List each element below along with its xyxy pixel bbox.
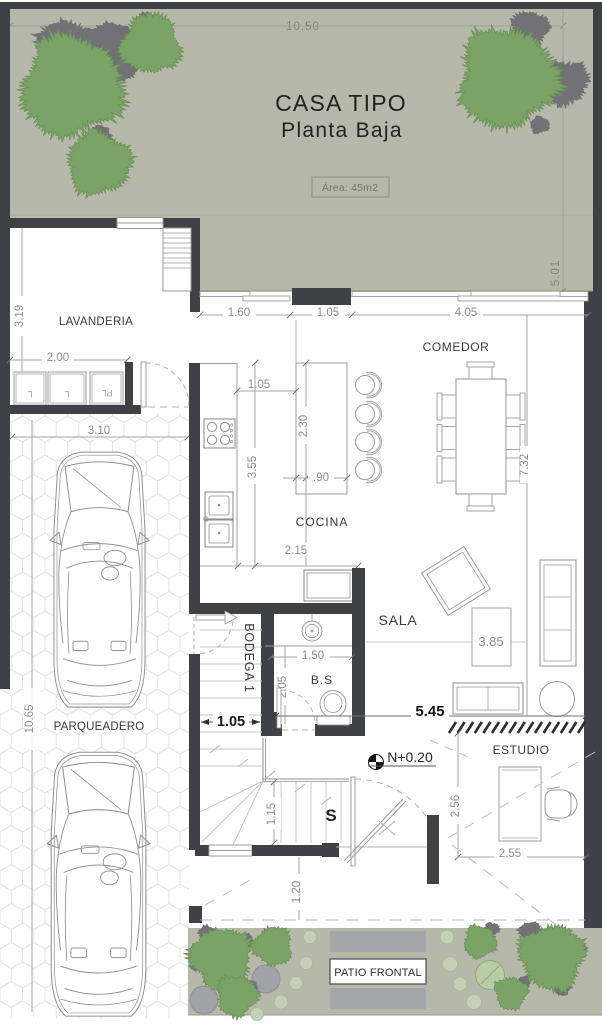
svg-text:10.65: 10.65 (24, 705, 36, 734)
svg-text:5.45: 5.45 (415, 703, 444, 720)
svg-text:2.30: 2.30 (298, 415, 310, 437)
svg-text:COCINA: COCINA (296, 515, 349, 529)
svg-text:4.05: 4.05 (455, 307, 477, 319)
svg-text:1.05: 1.05 (317, 307, 339, 319)
svg-text:COMEDOR: COMEDOR (423, 340, 490, 354)
svg-text:2.55: 2.55 (499, 848, 521, 860)
svg-text:3.55: 3.55 (247, 456, 259, 478)
svg-text:3.10: 3.10 (88, 425, 110, 437)
svg-text:3.19: 3.19 (14, 305, 26, 327)
svg-text:7.32: 7.32 (519, 454, 531, 476)
svg-text:S: S (325, 806, 336, 825)
svg-text:1.05: 1.05 (248, 379, 270, 391)
svg-text:5.01: 5.01 (550, 260, 562, 286)
svg-text:1.05: 1.05 (217, 714, 245, 730)
svg-text:2.00: 2.00 (47, 352, 69, 364)
svg-text:1.60: 1.60 (228, 307, 250, 319)
svg-text:BODEGA 1: BODEGA 1 (242, 623, 256, 693)
svg-text:1.20: 1.20 (291, 881, 303, 903)
svg-text:SALA: SALA (379, 612, 418, 628)
svg-text:PARQUEADERO: PARQUEADERO (54, 721, 145, 733)
svg-text:LAVANDERIA: LAVANDERIA (59, 316, 133, 328)
svg-text:10.50: 10.50 (286, 21, 320, 33)
svg-text:2.15: 2.15 (285, 545, 307, 557)
svg-text:PL: PL (101, 388, 112, 398)
svg-text:ESTUDIO: ESTUDIO (493, 743, 550, 757)
svg-text:3.85: 3.85 (478, 634, 503, 649)
svg-text:L: L (27, 389, 32, 399)
svg-text:.90: .90 (313, 472, 329, 484)
svg-text:Planta Baja: Planta Baja (281, 119, 403, 142)
svg-text:1.15: 1.15 (266, 803, 278, 825)
svg-text:Área: 45m2: Área: 45m2 (322, 181, 378, 194)
svg-text:CASA TIPO: CASA TIPO (275, 90, 407, 116)
svg-text:B.S: B.S (311, 673, 333, 687)
svg-text:1.50: 1.50 (302, 650, 324, 662)
svg-text:L: L (64, 389, 69, 399)
svg-text:2.56: 2.56 (450, 795, 462, 817)
svg-text:PATIO FRONTAL: PATIO FRONTAL (334, 967, 422, 979)
svg-text:N+0.20: N+0.20 (387, 749, 433, 765)
